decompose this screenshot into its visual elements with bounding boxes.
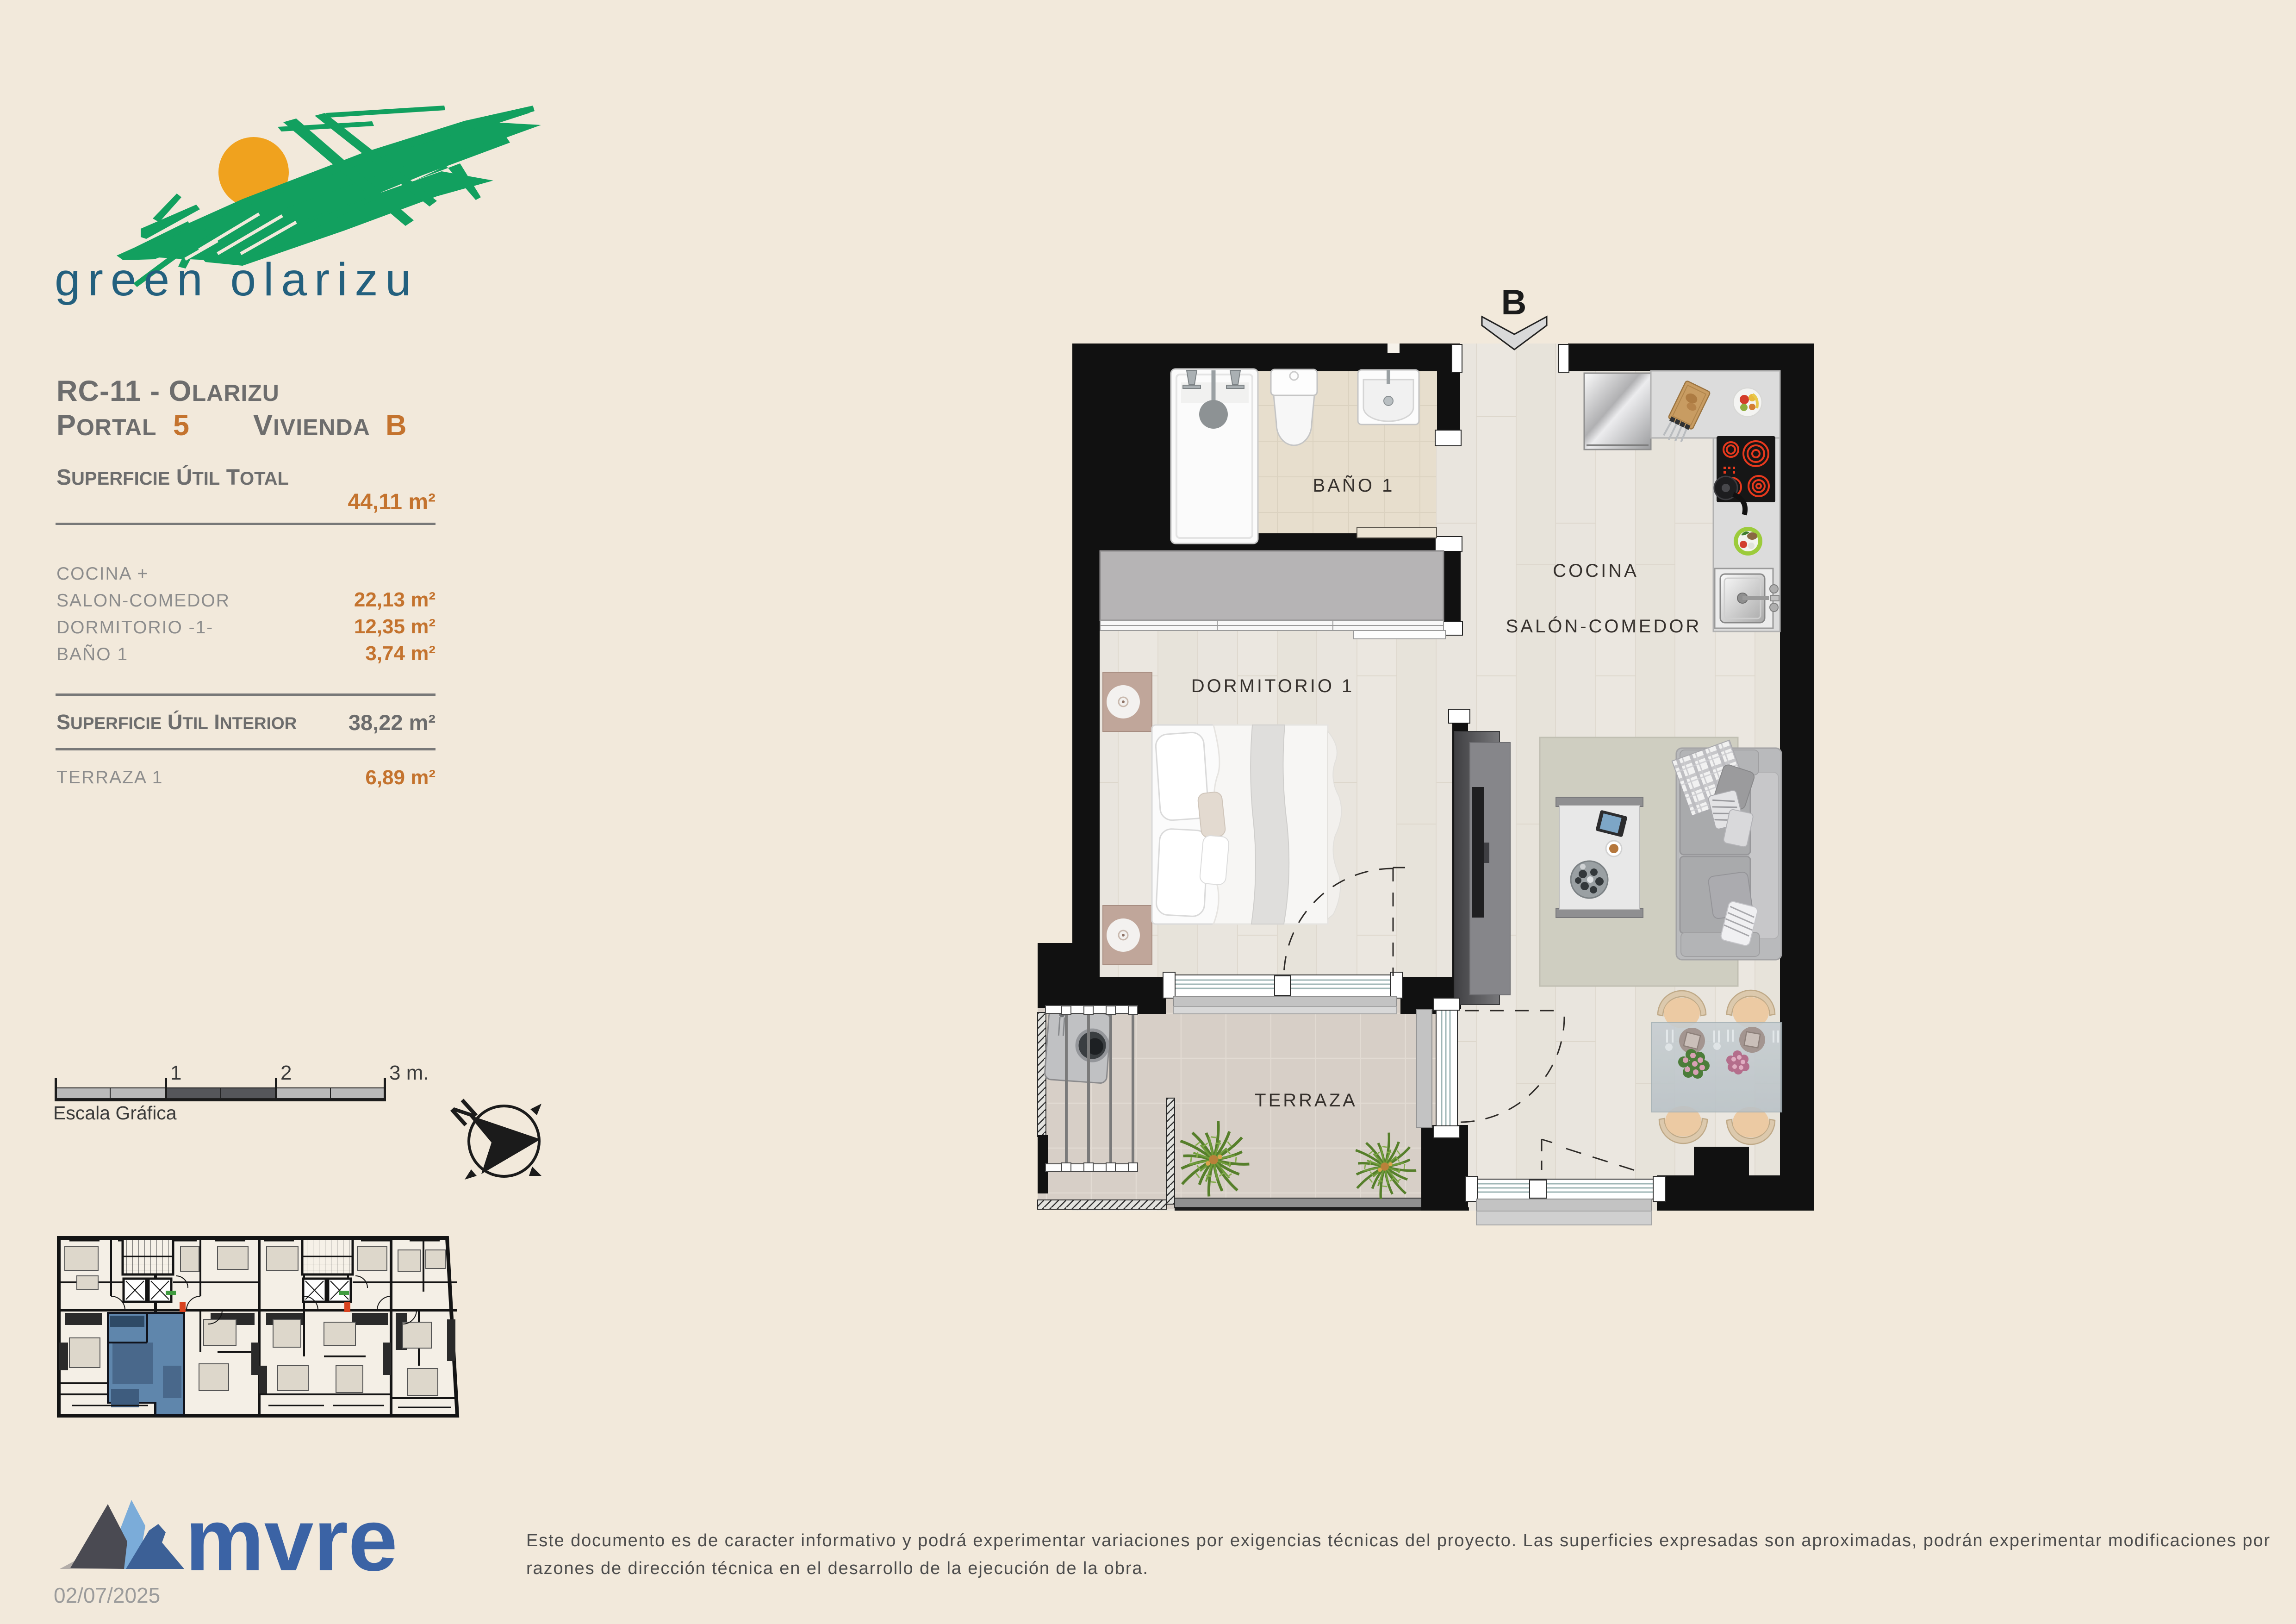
svg-text:12,35 m²: 12,35 m² bbox=[354, 615, 436, 638]
svg-text:green olarizu: green olarizu bbox=[55, 254, 418, 306]
svg-text:TERRAZA 1: TERRAZA 1 bbox=[56, 768, 163, 787]
svg-text:SALON-COMEDOR: SALON-COMEDOR bbox=[56, 591, 230, 611]
svg-text:mvre: mvre bbox=[185, 1490, 398, 1589]
svg-text:2: 2 bbox=[280, 1062, 292, 1084]
svg-text:6,89 m²: 6,89 m² bbox=[365, 766, 436, 789]
svg-text:Este documento es de caracter: Este documento es de caracter informativ… bbox=[526, 1531, 2271, 1550]
svg-text:COCINA +: COCINA + bbox=[56, 564, 149, 584]
svg-text:BAÑO 1: BAÑO 1 bbox=[56, 644, 128, 664]
svg-text:Escala Gráfica: Escala Gráfica bbox=[53, 1102, 177, 1124]
svg-text:38,22 m²: 38,22 m² bbox=[348, 710, 436, 735]
svg-text:1: 1 bbox=[170, 1062, 181, 1084]
svg-text:02/07/2025: 02/07/2025 bbox=[54, 1583, 160, 1607]
svg-text:BAÑO 1: BAÑO 1 bbox=[1313, 475, 1395, 496]
svg-text:22,13 m²: 22,13 m² bbox=[354, 588, 436, 611]
svg-text:SALÓN-COMEDOR: SALÓN-COMEDOR bbox=[1506, 616, 1702, 637]
svg-text:44,11 m²: 44,11 m² bbox=[348, 490, 436, 514]
svg-text:DORMITORIO -1-: DORMITORIO -1- bbox=[56, 618, 213, 637]
svg-text:SUPERFICIE ÚTIL INTERIOR: SUPERFICIE ÚTIL INTERIOR bbox=[56, 710, 297, 734]
svg-text:B: B bbox=[1501, 283, 1527, 322]
svg-text:SUPERFICIE ÚTIL TOTAL: SUPERFICIE ÚTIL TOTAL bbox=[56, 464, 289, 490]
svg-text:RC-11 - OLARIZU: RC-11 - OLARIZU bbox=[56, 375, 280, 407]
svg-text:3,74 m²: 3,74 m² bbox=[365, 642, 436, 665]
svg-text:TERRAZA: TERRAZA bbox=[1255, 1090, 1357, 1111]
svg-text:COCINA: COCINA bbox=[1553, 561, 1639, 581]
svg-text:DORMITORIO 1: DORMITORIO 1 bbox=[1191, 676, 1355, 696]
svg-text:razones de dirección técnica e: razones de dirección técnica en el desar… bbox=[526, 1559, 1149, 1578]
svg-text:3 m.: 3 m. bbox=[389, 1062, 429, 1084]
